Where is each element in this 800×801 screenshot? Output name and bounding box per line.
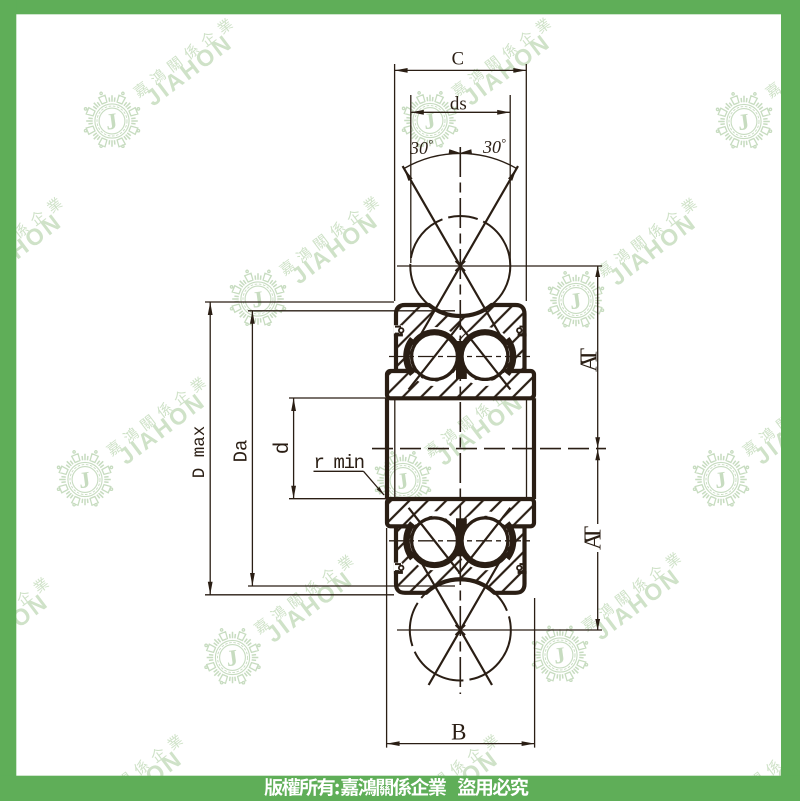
svg-text:Da: Da xyxy=(231,440,253,463)
svg-text:AT: AT xyxy=(576,348,602,372)
svg-text:C: C xyxy=(452,50,464,70)
svg-text:ds: ds xyxy=(450,94,467,115)
svg-text:D max: D max xyxy=(190,426,210,479)
svg-text:AT: AT xyxy=(581,526,607,550)
svg-text:B: B xyxy=(451,720,466,745)
svg-text:d: d xyxy=(272,442,295,455)
